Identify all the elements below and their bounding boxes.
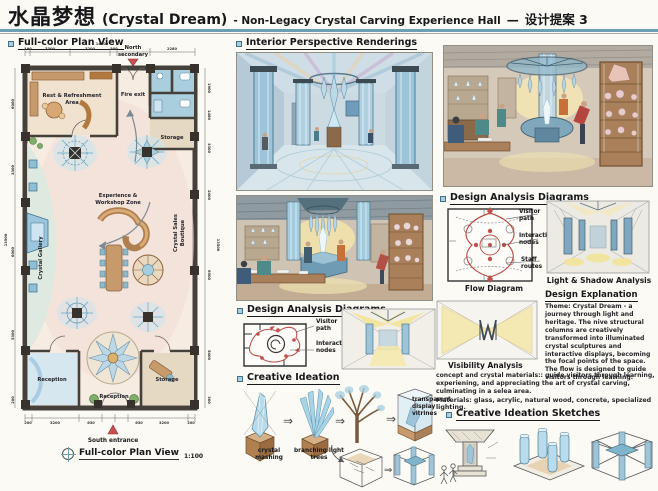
arrow-right-icon: ⇒ bbox=[283, 414, 293, 428]
dim-label: 5400 bbox=[207, 350, 211, 361]
dim-label: 2280 bbox=[167, 47, 178, 51]
section-ideation-sketches: Creative Ideation Sketches bbox=[446, 408, 600, 421]
room-label-fire-exit: Fire exit bbox=[121, 92, 146, 98]
dim-label: 630 bbox=[87, 421, 95, 425]
ideation-sketches-right bbox=[436, 424, 656, 488]
section-ideation-label: Creative Ideation bbox=[247, 372, 340, 385]
dim-label: 3300 bbox=[11, 165, 15, 176]
light-shadow-caption: Light & Shadow Analysis bbox=[546, 276, 652, 285]
section-renderings-label: Interior Perspective Renderings bbox=[246, 37, 417, 50]
arrow-right-icon: ⇒ bbox=[335, 414, 345, 428]
visibility-caption: Visibility Analysis bbox=[448, 361, 523, 370]
light-shadow-sketch bbox=[546, 200, 650, 274]
dim-label: 6500 bbox=[207, 270, 211, 281]
plan-caption: Full-color Plan View 1:100 bbox=[62, 448, 203, 460]
mandala-medallion bbox=[87, 332, 139, 384]
flow-diagram-caption: Flow Diagram bbox=[452, 284, 536, 293]
mid-light-sketch bbox=[341, 308, 436, 370]
dim-label: 200 bbox=[187, 421, 195, 425]
dim-label: 6000 bbox=[11, 247, 15, 258]
title-underline-thin bbox=[0, 33, 658, 34]
dim-label: 2400 bbox=[207, 190, 211, 201]
title-proposal-number: 设计提案 3 bbox=[525, 9, 588, 28]
south-entrance-label: South entrance bbox=[88, 438, 138, 444]
dim-label: 1900 bbox=[207, 83, 211, 94]
crystal-tower-icon bbox=[57, 135, 93, 171]
plan-drawing: 14500 190 3300 3200 300 2280 North secon… bbox=[2, 40, 227, 444]
room-label-experience2: Workshop Zone bbox=[95, 200, 141, 206]
title-underline bbox=[0, 29, 658, 32]
arrow-right-icon: ⇒ bbox=[384, 465, 392, 476]
plan-scale: 1:100 bbox=[184, 453, 203, 460]
section-bullet-icon bbox=[237, 376, 243, 382]
dim-label: 630 bbox=[135, 421, 143, 425]
section-ideation-sketches-label: Creative Ideation Sketches bbox=[456, 408, 600, 421]
room-label-rest: Rest & Refreshment bbox=[43, 93, 102, 99]
visibility-sketch bbox=[436, 300, 538, 360]
dim-label: 200 bbox=[24, 421, 32, 425]
section-renderings: Interior Perspective Renderings bbox=[236, 37, 417, 50]
dim-label: 200 bbox=[11, 396, 15, 404]
dim-label: 3300 bbox=[207, 143, 211, 154]
dim-label: 6000 bbox=[11, 99, 15, 110]
design-explanation-text: Theme: Crystal Dream - a journey through… bbox=[545, 303, 657, 382]
room-label-reception-bottom: Reception bbox=[99, 394, 129, 400]
dim-label: 13500 bbox=[216, 239, 220, 252]
label-crystal-mashing: crystal mashing bbox=[248, 448, 290, 462]
section-bullet-icon bbox=[236, 41, 242, 47]
title-subtitle: - Non-Legacy Crystal Carving Experience … bbox=[233, 15, 500, 27]
page-title: 水晶梦想 (Crystal Dream) - Non-Legacy Crysta… bbox=[8, 1, 588, 31]
dim-label: 5300 bbox=[11, 330, 15, 341]
dim-label: 190 bbox=[24, 47, 32, 51]
title-dash: — bbox=[507, 13, 519, 27]
concept-text: concept and crystal materials:: guide vi… bbox=[436, 372, 656, 396]
dim-label: 3200 bbox=[159, 421, 170, 425]
arrow-right-icon: ⇒ bbox=[386, 412, 396, 426]
rendering-crystal-hall bbox=[236, 52, 433, 191]
dim-label: 3200 bbox=[50, 421, 61, 425]
room-label-experience: Experience & bbox=[99, 193, 138, 199]
room-label-storage-bottom: Storage bbox=[155, 377, 179, 383]
crystal-tower-icon bbox=[130, 135, 164, 169]
north-label-line2: secondary bbox=[118, 52, 149, 58]
rendering-sales-hall bbox=[443, 45, 653, 187]
plan-symbol-icon bbox=[62, 448, 74, 460]
north-arrow-icon bbox=[128, 59, 138, 66]
section-ideation: Creative Ideation bbox=[237, 372, 340, 385]
south-arrow-icon bbox=[108, 425, 118, 434]
dim-label: 13500 bbox=[4, 233, 8, 246]
dim-label: 3200 bbox=[85, 47, 96, 51]
room-label-sales2: Boutique bbox=[180, 219, 186, 246]
design-explanation-header: Design Explanation bbox=[545, 290, 638, 302]
plan-caption-text: Full-color Plan View bbox=[79, 448, 179, 460]
north-label-line1: North bbox=[125, 45, 142, 51]
room-label-gallery: Crystal Gallery bbox=[38, 236, 44, 280]
label-branching-trees: branching light trees bbox=[294, 448, 344, 462]
room-label-storage-top: Storage bbox=[160, 135, 184, 141]
section-bullet-icon bbox=[446, 412, 452, 418]
dim-label: 300 bbox=[207, 396, 211, 404]
room-label-sales: Crystal Sales bbox=[173, 214, 179, 252]
ideation-sketches: ⇒ ⇒ ⇒ ⇒ bbox=[236, 385, 436, 489]
dim-label: 14500 bbox=[96, 42, 109, 46]
room-label-rest2: Area bbox=[65, 100, 79, 106]
dim-label: 300 bbox=[110, 47, 118, 51]
dim-label: 1480 bbox=[207, 110, 211, 121]
title-chinese: 水晶梦想 bbox=[8, 1, 96, 31]
section-bullet-icon bbox=[440, 196, 446, 202]
room-label-reception-left: Reception bbox=[37, 377, 67, 383]
title-english: (Crystal Dream) bbox=[102, 12, 227, 28]
rendering-workshop bbox=[236, 195, 433, 301]
section-bullet-icon bbox=[237, 308, 243, 314]
dim-label: 3300 bbox=[45, 47, 56, 51]
